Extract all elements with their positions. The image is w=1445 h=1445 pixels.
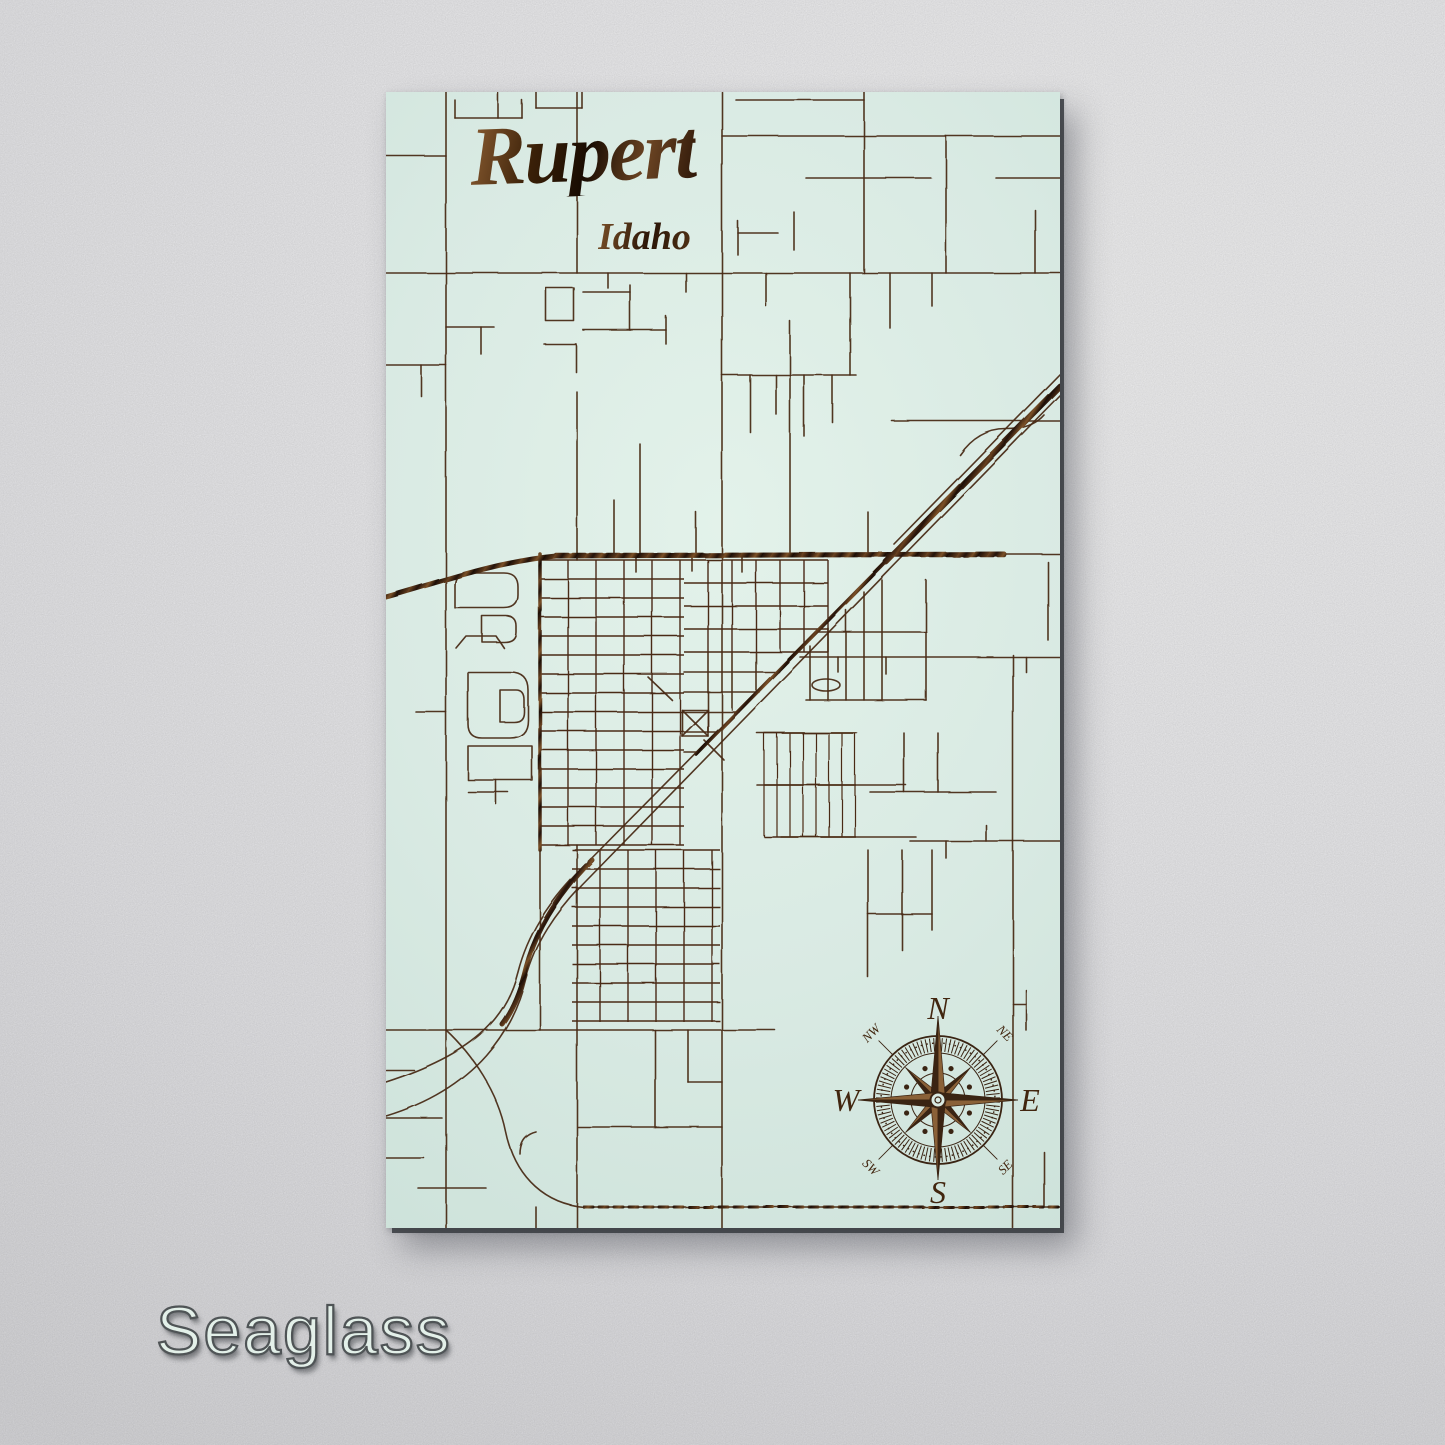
map-subtitle: Idaho <box>598 218 691 256</box>
map-title: Rupert <box>469 108 698 200</box>
compass-label-south: S <box>930 1174 946 1210</box>
compass-label-north: N <box>926 990 950 1026</box>
map-panel: NSEWNWNESWSE Rupert Idaho <box>386 92 1060 1228</box>
product-photo: { "product": { "title": "Rupert", "subti… <box>0 0 1445 1445</box>
compass-label-southwest: SW <box>860 1156 884 1180</box>
street-network: NSEWNWNESWSE <box>386 92 1060 1228</box>
compass-label-east: E <box>1019 1082 1040 1118</box>
variant-label: Seaglass <box>156 1292 452 1370</box>
compass-rose-icon: NSEWNWNESWSE <box>833 990 1041 1210</box>
compass-label-west: W <box>833 1082 863 1118</box>
